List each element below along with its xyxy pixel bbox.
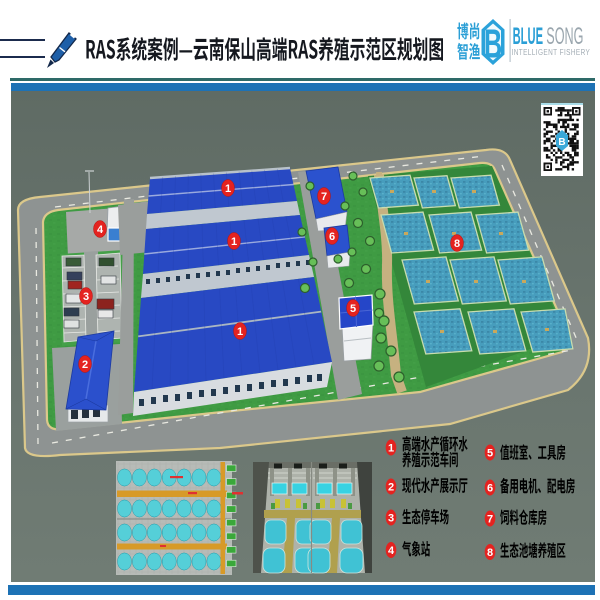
- svg-text:8: 8: [487, 547, 493, 559]
- svg-text:B: B: [558, 137, 565, 148]
- svg-text:5: 5: [350, 303, 356, 315]
- svg-text:3: 3: [388, 513, 394, 525]
- svg-text:1: 1: [225, 183, 231, 195]
- svg-text:4: 4: [388, 545, 395, 557]
- svg-text:6: 6: [329, 231, 335, 243]
- svg-text:1: 1: [388, 443, 394, 455]
- svg-text:1: 1: [231, 236, 237, 248]
- svg-text:2: 2: [388, 482, 394, 494]
- svg-text:4: 4: [97, 224, 104, 236]
- svg-text:7: 7: [321, 191, 327, 203]
- svg-text:5: 5: [487, 448, 493, 460]
- svg-text:B: B: [484, 21, 502, 67]
- svg-text:1: 1: [237, 326, 243, 338]
- svg-text:8: 8: [454, 238, 460, 250]
- svg-text:2: 2: [82, 359, 88, 371]
- svg-text:7: 7: [487, 514, 493, 526]
- svg-text:SONG: SONG: [546, 23, 583, 51]
- svg-text:INTELLIGENT FISHERY: INTELLIGENT FISHERY: [512, 47, 591, 57]
- svg-text:3: 3: [83, 291, 89, 303]
- svg-text:6: 6: [487, 483, 493, 495]
